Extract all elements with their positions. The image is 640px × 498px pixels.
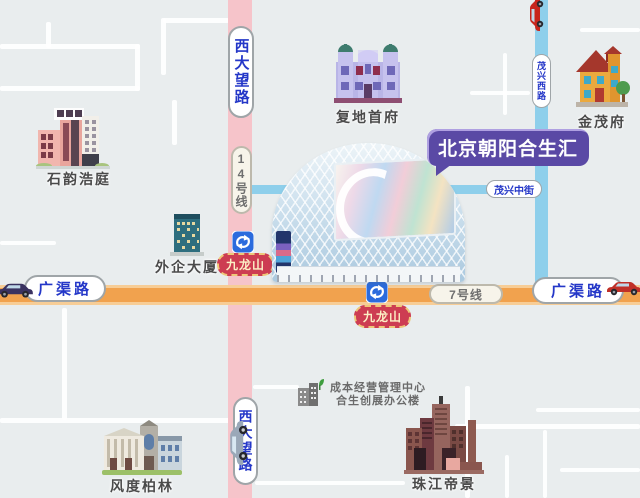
street-line (0, 86, 140, 91)
car-icon (604, 274, 640, 302)
waiqidasha-label: 外企大厦 (152, 257, 222, 277)
street-line (580, 28, 640, 32)
street-line (470, 91, 530, 95)
zhujiangdijing-label: 珠江帝景 (408, 474, 480, 494)
jinmaofu-building-icon (574, 44, 630, 110)
street-line (543, 430, 547, 498)
road-label-maoxingzhongjie: 茂兴中街 (486, 180, 542, 198)
street-line (536, 408, 640, 412)
street-line (560, 468, 640, 472)
metro-line7-label: 7号线 (429, 284, 503, 304)
road-label-xidawanglu-top: 西大望路 (228, 26, 254, 118)
metro-interchange-icon (366, 281, 388, 303)
car-icon (225, 417, 251, 469)
car-icon (526, 0, 546, 34)
office-label-line1: 成本经营管理中心 (330, 382, 426, 394)
fudishoufu-label: 复地首府 (328, 107, 408, 127)
car-icon (0, 280, 36, 300)
street-line (163, 18, 229, 23)
shiyunhaoting-building-icon (36, 106, 110, 170)
road-label-guangqulu-left: 广渠路 (24, 275, 106, 302)
shiyunhaoting-label: 石韵浩庭 (38, 169, 120, 189)
fudishoufu-building-icon (328, 42, 408, 106)
station-jiulongshan-1: 九龙山 (217, 253, 274, 276)
waiqidasha-building-icon (170, 214, 204, 256)
street-line (135, 44, 140, 91)
street-line (0, 241, 56, 245)
street-line (172, 100, 177, 145)
street-line (0, 44, 140, 49)
street-line (505, 455, 509, 498)
street-line (62, 308, 67, 420)
mall-title-bubble: 北京朝阳合生汇 (427, 129, 589, 166)
street-line (503, 53, 507, 115)
metro-interchange-icon (232, 231, 254, 253)
street-line (253, 385, 299, 389)
metro-line14-label: 14号线 (231, 146, 252, 214)
office-building-icon (296, 378, 324, 408)
map-canvas: 石韵浩庭 复地首府 金茂府 (0, 0, 640, 498)
fengdubolin-label: 风度柏林 (106, 476, 178, 496)
street-line (161, 18, 166, 75)
fengdubolin-building-icon (98, 420, 186, 478)
street-line (255, 481, 405, 485)
zhujiangdijing-building-icon (402, 396, 486, 476)
station-jiulongshan-2: 九龙山 (354, 305, 411, 328)
road-label-maoxingxilu: 茂兴西路 (532, 54, 551, 108)
street-line (46, 22, 51, 48)
billboard-swoosh-graphic (336, 166, 408, 241)
mall-ground-floor (277, 266, 460, 282)
